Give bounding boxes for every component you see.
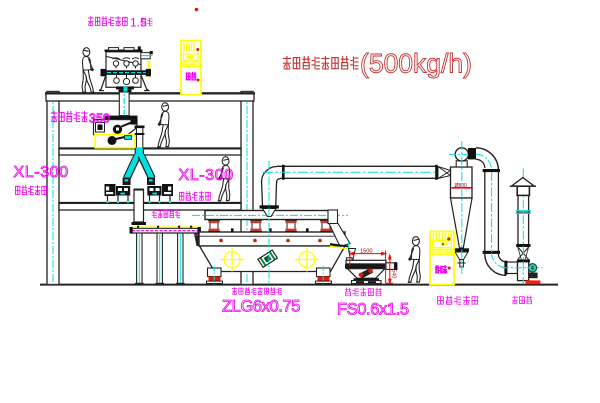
svg-text:(500kg/h): (500kg/h)	[360, 49, 472, 79]
svg-text:XL-300: XL-300	[14, 164, 69, 181]
svg-text:XL-300: XL-300	[179, 167, 234, 184]
svg-text:ZLG6x0.75: ZLG6x0.75	[222, 298, 300, 316]
svg-text:350: 350	[89, 112, 110, 126]
svg-text:540: 540	[391, 269, 397, 278]
svg-text:Ø800: Ø800	[455, 183, 467, 189]
svg-text:1.5: 1.5	[130, 16, 147, 30]
svg-text:FS0.6x1.5: FS0.6x1.5	[337, 301, 409, 319]
svg-text:1500: 1500	[360, 249, 372, 255]
